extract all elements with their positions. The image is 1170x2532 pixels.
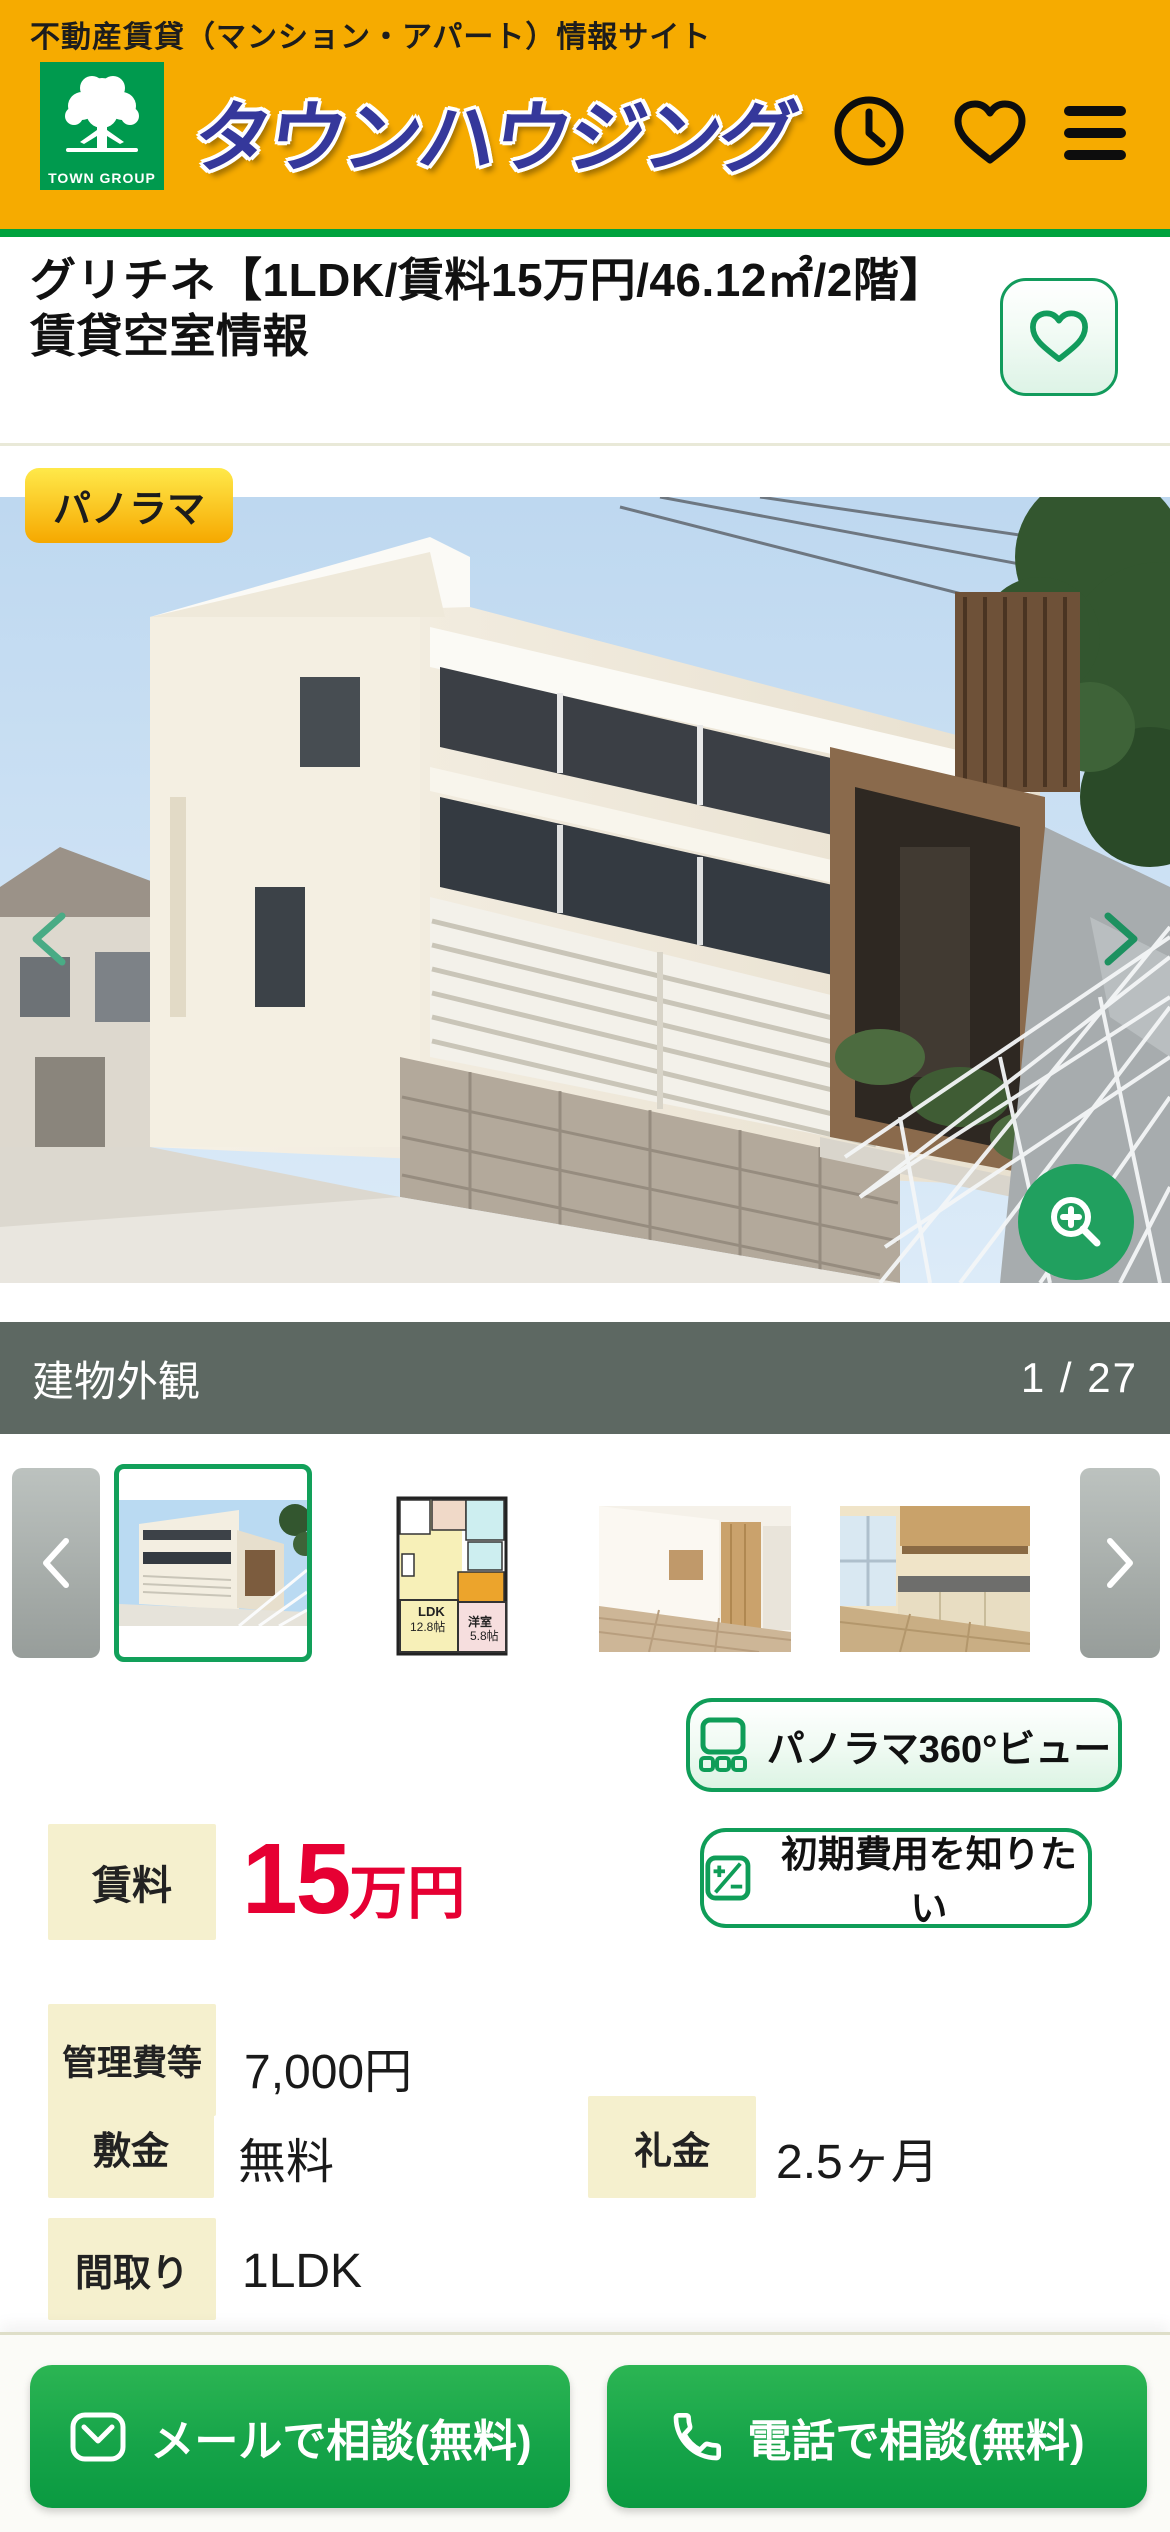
panorama-360-label: パノラマ360°ビュー [767,1718,1112,1773]
brand-logotype[interactable]: タウンハウジング [187,76,803,188]
building-exterior-photo [0,497,1170,1283]
layout-label: 間取り [48,2218,216,2320]
section-divider [0,443,1170,446]
header-divider [0,229,1170,237]
phone-consult-label: 電話で相談(無料) [747,2405,1084,2469]
initial-cost-label: 初期費用を知りたい [770,1824,1088,1932]
chevron-left-icon [22,908,74,970]
favorite-property-button[interactable] [1000,278,1118,396]
hamburger-menu-icon [1062,104,1128,162]
thumbnail-kitchen[interactable] [840,1506,1030,1652]
panorama-viewer-icon [697,1716,749,1774]
room-interior-image [599,1506,791,1652]
photo-next-button[interactable] [1096,908,1148,973]
photo-caption-bar: 建物外観 1 / 27 [0,1322,1170,1434]
page-title: グリチネ【1LDK/賃料15万円/46.12㎡/2階】賃貸空室情報 [30,252,970,364]
thumbnail-room-interior[interactable] [599,1506,791,1652]
mail-icon [68,2407,128,2467]
chevron-right-icon [1096,908,1148,970]
deposit-label: 敷金 [48,2096,214,2198]
floorplan-ldk-name: LDK [418,1604,445,1619]
contact-bar: メールで相談(無料) 電話で相談(無料) [0,2332,1170,2532]
management-fee-value: 7,000円 [244,2032,412,2102]
photo-prev-button[interactable] [22,908,74,973]
history-button[interactable] [832,94,906,171]
site-description: 不動産賃貸（マンション・アパート）情報サイト [30,12,711,56]
clock-icon [832,94,906,168]
kitchen-image [840,1506,1030,1652]
heart-outline-icon [1028,309,1090,365]
chevron-left-icon [36,1535,76,1591]
site-header: 不動産賃貸（マンション・アパート）情報サイト TOWN GROUP タウンハウジ… [0,0,1170,229]
thumbnail-building-image [119,1500,307,1626]
floorplan-room-size: 5.8帖 [470,1628,499,1643]
panorama-360-button[interactable]: パノラマ360°ビュー [686,1698,1122,1792]
calculator-icon [704,1853,752,1903]
thumbnail-building-exterior[interactable] [114,1464,312,1662]
tree-icon [50,68,154,160]
photo-caption: 建物外観 [32,1348,200,1409]
initial-cost-button[interactable]: 初期費用を知りたい [700,1828,1092,1928]
layout-value: 1LDK [242,2244,362,2299]
town-group-logo[interactable]: TOWN GROUP [40,62,164,190]
rent-unit: 万円 [349,1861,465,1926]
thumbs-next-button[interactable] [1080,1468,1160,1658]
chevron-right-icon [1100,1535,1140,1591]
key-money-label: 礼金 [588,2096,756,2198]
rent-value: 15万円 [242,1822,465,1937]
mail-consult-button[interactable]: メールで相談(無料) [30,2365,570,2508]
main-photo[interactable] [0,497,1170,1283]
floorplan-ldk-size: 12.8帖 [410,1619,445,1634]
rent-amount: 15 [242,1823,349,1935]
zoom-in-icon [1043,1189,1109,1255]
floorplan-image: LDK 12.8帖 洋室 5.8帖 [392,1490,512,1662]
heart-icon [952,100,1028,166]
menu-button[interactable] [1062,104,1128,165]
phone-consult-button[interactable]: 電話で相談(無料) [607,2365,1147,2508]
phone-icon [669,2409,725,2465]
panorama-badge: パノラマ [25,468,233,543]
key-money-value: 2.5ヶ月 [776,2122,939,2192]
mobile-screen: 不動産賃貸（マンション・アパート）情報サイト TOWN GROUP タウンハウジ… [0,0,1170,2532]
photo-zoom-button[interactable] [1018,1164,1134,1280]
thumbs-prev-button[interactable] [12,1468,100,1658]
floorplan-room-name: 洋室 [468,1614,492,1629]
deposit-value: 無料 [238,2122,334,2192]
photo-counter: 1 / 27 [1021,1354,1138,1402]
mail-consult-label: メールで相談(無料) [150,2405,531,2469]
thumbnail-floorplan[interactable]: LDK 12.8帖 洋室 5.8帖 [392,1490,512,1662]
rent-label: 賃料 [48,1824,216,1940]
favorites-button[interactable] [952,100,1028,169]
logo-caption: TOWN GROUP [48,170,156,186]
